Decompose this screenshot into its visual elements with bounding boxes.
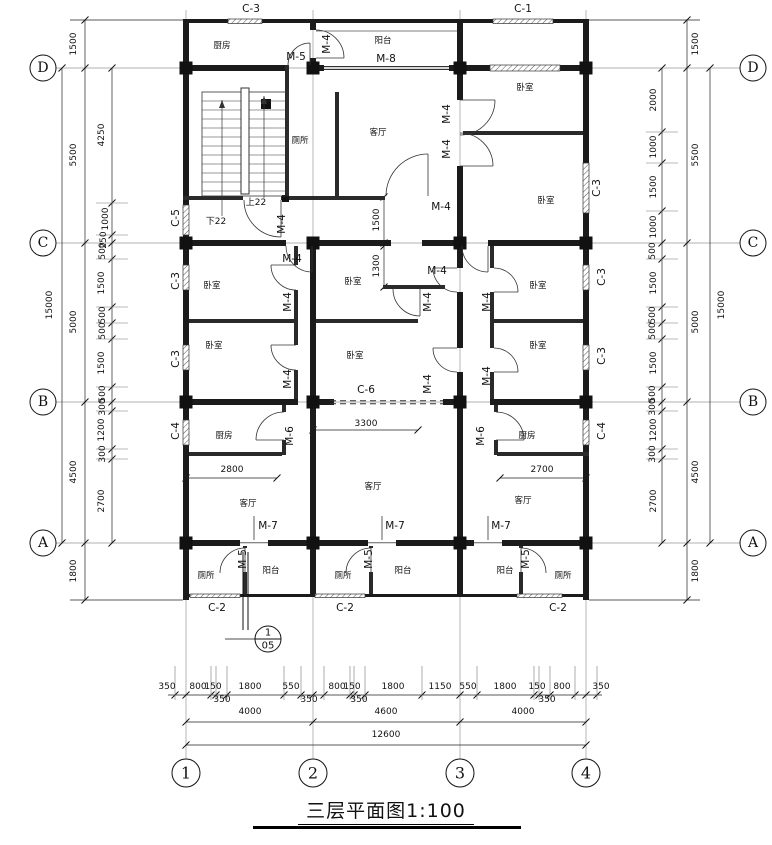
room-label: 厕所 [197,570,215,581]
dim-label: 1800 [69,559,79,582]
dim-label: 1800 [382,682,405,692]
door-label: M-4 [427,265,447,277]
dim-label: 150 [528,682,545,692]
dim-label: 12600 [372,730,401,740]
drawing-sheet: { "drawing_title": {"text": "三层平面图", "sc… [0,0,772,845]
dim-label: 2700 [531,465,554,475]
grid-row-label: A [37,535,49,551]
door-label: M-6 [475,426,487,446]
dim-label: 1200 [649,418,659,441]
dim-label: 350 [538,695,555,705]
window-label: C-1 [514,3,532,15]
dim-label: 1500 [97,271,107,294]
dim-label: 300 [98,445,108,462]
stair-direction-label: 下22 [206,217,226,227]
window-label: C-3 [170,350,182,368]
room-label: 厨房 [215,430,232,441]
room-label: 客厅 [239,498,257,509]
dim-label: 5500 [69,143,79,166]
dim-label: 1500 [649,351,659,374]
dim-label: 1500 [649,271,659,294]
dim-label: 5500 [691,143,701,166]
room-label: 客厅 [514,495,532,506]
door-swings [220,30,546,573]
room-label: 卧室 [344,276,362,287]
dim-label: 4500 [69,460,79,483]
dim-label: 500 [648,242,658,259]
drawing-title: 三层平面图1:100 [0,796,772,825]
floor-plan: 厨房阳台卧室厕所客厅卧室卧室卧室卧室卧室卧室卧室厨房厨房客厅客厅客厅厕所阳台厕所… [0,0,772,845]
callout-sheet: 05 [262,641,275,652]
room-label: 卧室 [537,195,555,206]
room-label: 厨房 [518,430,535,441]
room-label: 客厅 [364,481,382,492]
dim-label: 550 [459,682,476,692]
dimension-ticks [59,17,714,749]
room-label: 阳台 [262,565,279,576]
window-label: C-2 [549,602,567,614]
stair-direction-label: 上22 [246,197,266,208]
window-label: C-4 [596,422,608,440]
callout-number: 1 [265,628,271,639]
door-label: M-4 [441,104,453,124]
door-label: M-5 [237,549,249,569]
dim-label: 4000 [239,707,262,717]
room-label: 厕所 [334,570,352,581]
dim-label: 4500 [691,460,701,483]
dim-label: 350 [158,682,175,692]
dim-label: 300 [648,445,658,462]
dim-label: 800 [553,682,570,692]
window-label: C-2 [336,602,354,614]
dim-label: 5000 [691,310,701,333]
room-label: 阳台 [496,565,513,576]
dim-label: 1800 [239,682,262,692]
door-label: M-8 [376,53,396,65]
room-label: 卧室 [346,350,364,361]
window-label: C-3 [596,347,608,365]
dim-label: 1800 [494,682,517,692]
dim-label: 4000 [512,707,535,717]
grid-row-label: C [38,235,49,251]
dim-label: 300 [648,398,658,415]
dim-label: 150 [204,682,221,692]
window-label: C-3 [591,179,603,197]
grid-row-label: B [748,394,758,410]
room-label: 卧室 [205,340,223,351]
dim-label: 500 [648,306,658,323]
room-label: 厨房 [213,40,230,51]
door-label: M-4 [276,214,288,234]
dim-label: 1000 [101,207,111,230]
door-label: M-4 [282,292,294,312]
grid-row-label: C [748,235,759,251]
dim-label: 350 [350,695,367,705]
dim-label: 500 [98,306,108,323]
dim-label: 5000 [69,310,79,333]
window-label: C-4 [170,422,182,440]
door-label: M-4 [481,292,493,312]
drawing-title-text: 三层平面图1:100 [298,796,474,825]
dim-label: 150 [343,682,360,692]
drawing-title-underline [253,826,521,829]
room-label: 阳台 [394,565,411,576]
dim-label: 1500 [691,32,701,55]
room-label: 阳台 [374,35,391,46]
room-label: 卧室 [529,340,547,351]
door-label: M-4 [282,253,302,265]
grid-row-label: A [747,535,759,551]
grid-col-label: 2 [308,764,318,783]
dim-label: 1200 [97,418,107,441]
dim-label: 300 [98,398,108,415]
window-label: C-5 [170,209,182,227]
room-label: 卧室 [203,280,221,291]
grid-lines [56,10,740,759]
door-label: M-4 [321,34,333,54]
grid-col-label: 1 [181,764,191,783]
dim-label: 3300 [355,419,378,429]
door-label: M-4 [282,369,294,389]
dim-label: 4600 [375,707,398,717]
dim-label: 500 [98,322,108,339]
door-label: M-4 [431,201,451,213]
door-label: M-4 [422,374,434,394]
room-label: 卧室 [516,82,534,93]
door-label: M-6 [284,426,296,446]
dim-label: 1500 [649,175,659,198]
window-label: C-3 [596,268,608,286]
door-label: M-4 [441,139,453,159]
door-label: M-5 [363,549,375,569]
window-label: C-3 [242,3,260,15]
dim-label: 15000 [717,290,727,319]
room-label: 卧室 [529,280,547,291]
window-label: C-2 [208,602,226,614]
dim-label: 350 [592,682,609,692]
door-label: M-7 [258,520,278,532]
grid-row-label: B [38,394,48,410]
dim-label: 1150 [429,682,452,692]
dim-label: 2800 [221,465,244,475]
dim-label: 500 [648,322,658,339]
grid-row-label: D [37,60,48,76]
dim-label: 2700 [649,489,659,512]
grid-col-label: 3 [455,764,465,783]
door-label: M-7 [385,520,405,532]
dim-label: 1500 [372,208,382,231]
door-label: M-7 [491,520,511,532]
door-label: M-4 [481,366,493,386]
room-label: 厕所 [554,570,572,581]
dim-label: 2700 [97,489,107,512]
grid-col-label: 4 [581,764,591,783]
dim-label: 350 [213,695,230,705]
room-label: 客厅 [369,127,387,138]
dim-label: 1500 [69,32,79,55]
dim-label: 1500 [97,351,107,374]
text-labels: 厨房阳台卧室厕所客厅卧室卧室卧室卧室卧室卧室卧室厨房厨房客厅客厅客厅厕所阳台厕所… [37,3,759,783]
dim-label: 2000 [649,88,659,111]
room-label: 厕所 [291,135,309,146]
dim-label: 15000 [45,290,55,319]
door-label: M-5 [520,549,532,569]
door-label: M-5 [286,51,306,63]
dim-label: 500 [98,242,108,259]
window-label: C-6 [357,384,375,396]
dim-label: 350 [300,695,317,705]
door-label: M-4 [422,292,434,312]
dim-label: 1000 [649,135,659,158]
dim-label: 4250 [97,123,107,146]
dim-label: 1800 [691,559,701,582]
dim-label: 1000 [649,215,659,238]
grid-row-label: D [747,60,758,76]
dim-label: 550 [282,682,299,692]
window-label: C-3 [170,272,182,290]
dim-label: 1300 [372,254,382,277]
